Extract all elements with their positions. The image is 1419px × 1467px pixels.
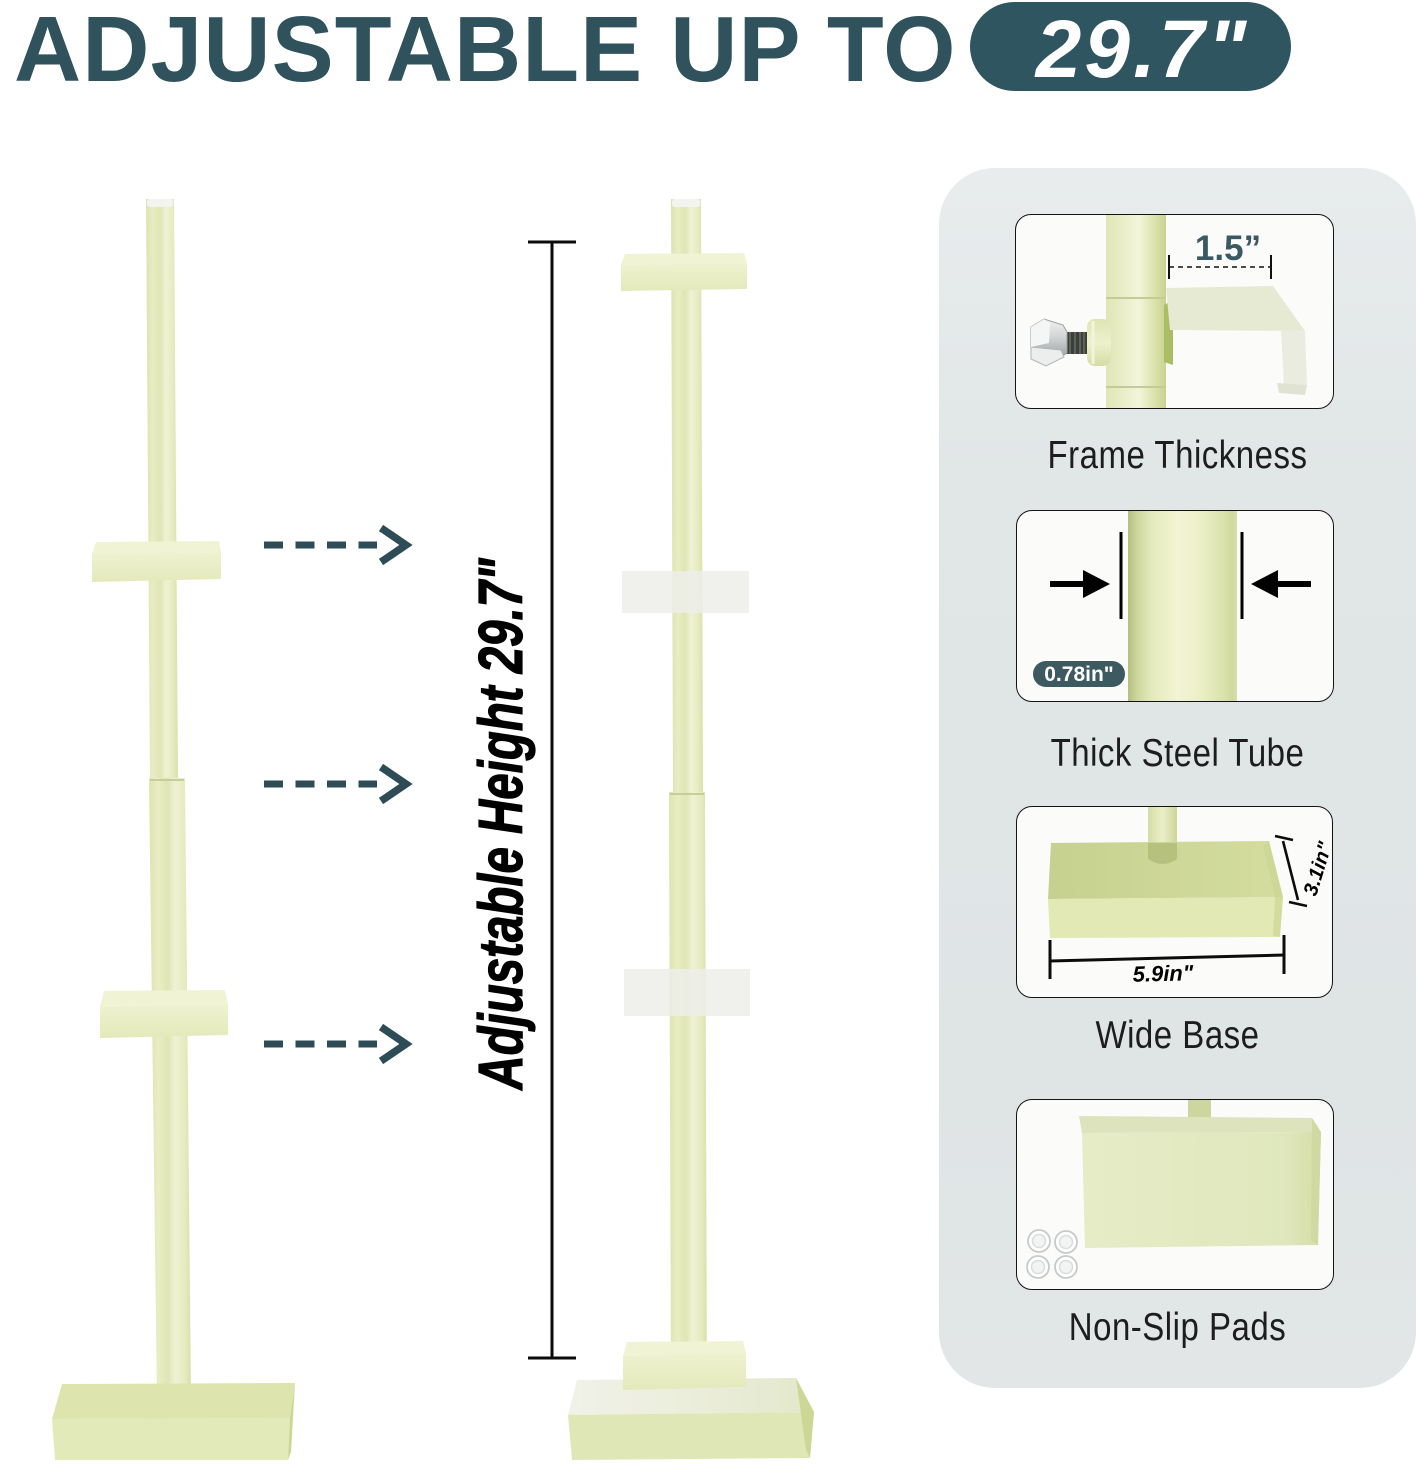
svg-text:0.78in": 0.78in" — [1044, 663, 1114, 686]
svg-text:5.9in": 5.9in" — [1132, 960, 1194, 987]
svg-text:1.5”: 1.5” — [1195, 229, 1261, 268]
svg-text:3.1in": 3.1in" — [1300, 839, 1332, 899]
